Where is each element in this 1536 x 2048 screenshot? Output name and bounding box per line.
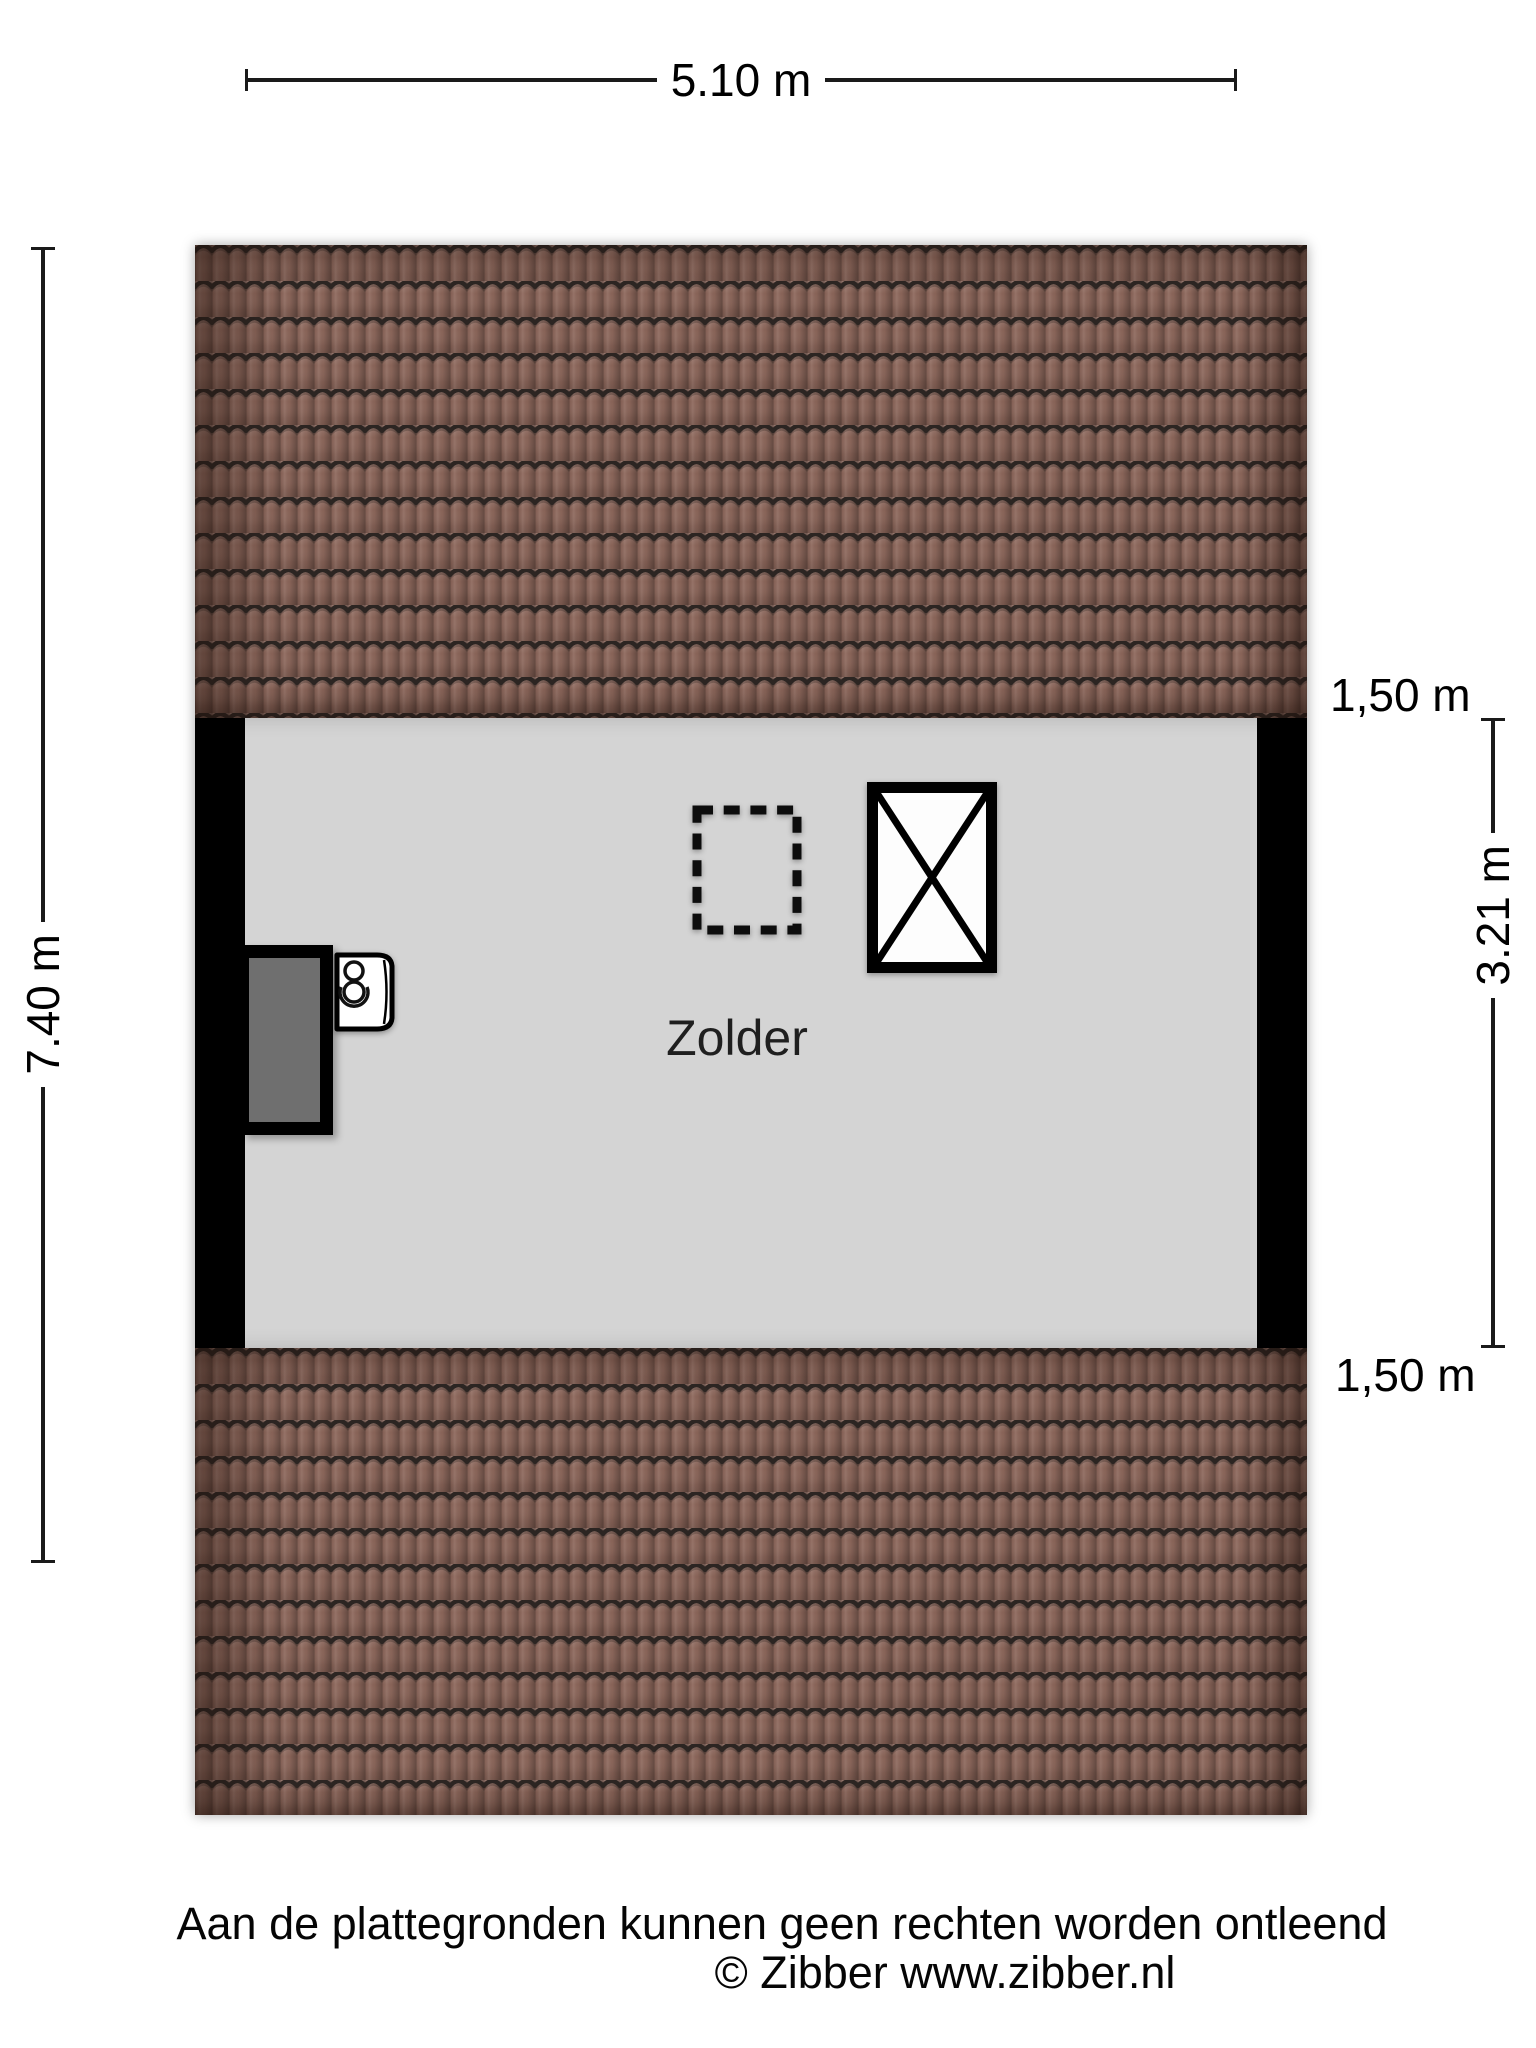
disclaimer-text: Aan de plattegronden kunnen geen rechten… (177, 1899, 1388, 1949)
dimension-left-height: 7.40 m (21, 247, 65, 1563)
attic-floor: Zolder (195, 718, 1307, 1348)
copyright-text: © Zibber www.zibber.nl (715, 1948, 1176, 1998)
wall-right (1257, 718, 1307, 1348)
dimension-tick (31, 1560, 55, 1563)
wall-left (195, 718, 245, 1348)
dimension-right-height: 3.21 m (1479, 718, 1507, 1348)
boiler-icon (333, 951, 397, 1033)
roof-tiles-pattern (195, 1348, 1307, 1815)
dimension-top-width: 5.10 m (245, 58, 1237, 102)
dimension-left-label: 7.40 m (20, 922, 66, 1087)
dimension-line (41, 1087, 45, 1560)
dimension-top-label: 5.10 m (657, 57, 826, 103)
storage-closet (243, 945, 333, 1135)
stair-opening-symbol (867, 782, 997, 973)
dimension-right-bottom-label: 1,50 m (1335, 1352, 1476, 1398)
dimension-line (41, 250, 45, 922)
floorplan-body: Zolder (195, 245, 1307, 1815)
dimension-right-middle-label: 3.21 m (1470, 833, 1516, 998)
room-name: Zolder (666, 1013, 808, 1063)
roof-window-dashed-outline (692, 805, 802, 935)
dimension-line (1491, 998, 1495, 1345)
dimension-line (825, 78, 1234, 82)
dimension-tick (1481, 1345, 1505, 1348)
roof-surface-top (195, 245, 1307, 718)
dimension-line (1491, 721, 1495, 833)
dimension-line (248, 78, 657, 82)
dimension-right-top-label: 1,50 m (1330, 672, 1471, 718)
roof-surface-bottom (195, 1348, 1307, 1815)
roof-tiles-pattern (195, 245, 1307, 718)
dimension-tick (1234, 69, 1237, 91)
floorplan-canvas: 5.10 m 7.40 m (0, 0, 1536, 2048)
